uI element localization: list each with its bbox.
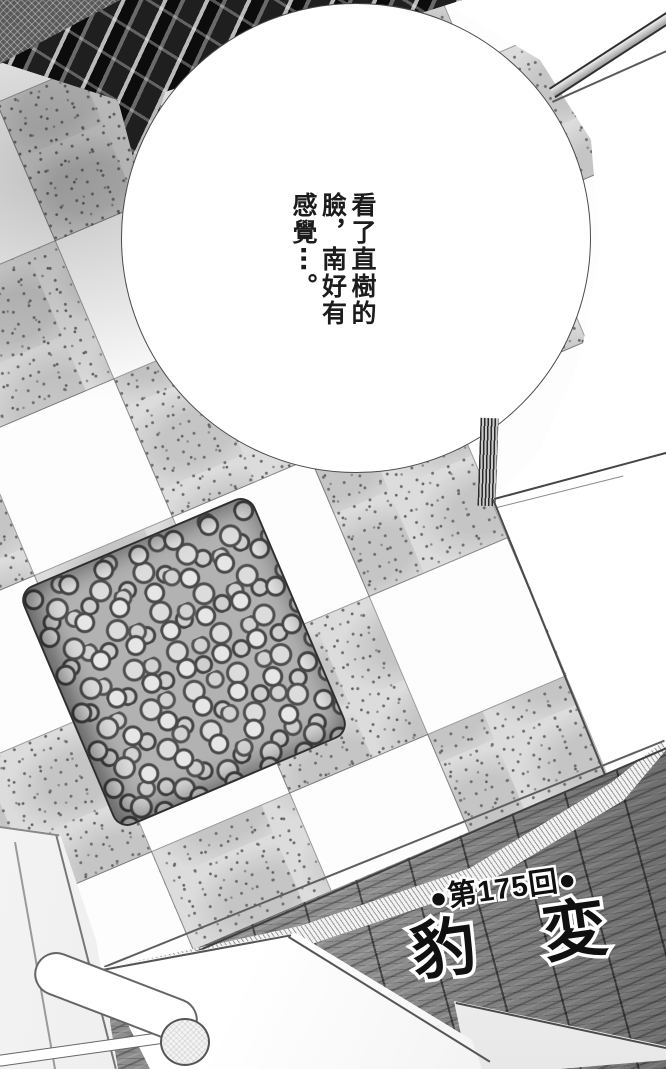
wall-corner-post xyxy=(477,418,498,507)
balloon-text: 看了直樹的 臉，南好有 感覺⋯。 xyxy=(282,192,376,348)
couch-leg-cap xyxy=(160,1018,210,1066)
manga-page: 看了直樹的 臉，南好有 感覺⋯。 ●第175回● ●第175回● 豹 変 豹 変 xyxy=(0,0,666,1069)
wall-baseboard-strip xyxy=(549,8,666,98)
